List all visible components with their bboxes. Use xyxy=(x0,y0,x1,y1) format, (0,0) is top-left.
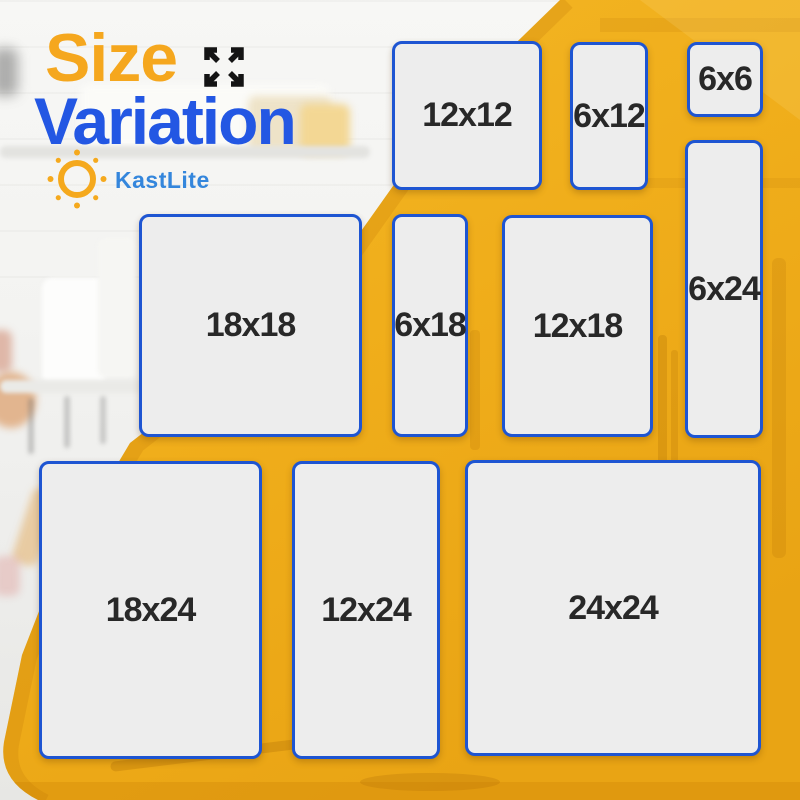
size-label: 18x18 xyxy=(206,306,296,345)
title-size: Size xyxy=(45,24,177,92)
size-label: 6x24 xyxy=(688,270,760,309)
title-variation: Variation xyxy=(34,88,295,154)
size-label: 18x24 xyxy=(106,591,196,630)
brand-name: KastLite xyxy=(115,167,210,194)
sun-icon xyxy=(46,148,108,210)
size-box-18x24: 18x24 xyxy=(39,461,262,759)
size-label: 6x12 xyxy=(573,97,645,136)
size-label: 6x18 xyxy=(394,306,466,345)
size-box-6x12: 6x12 xyxy=(570,42,648,190)
size-box-18x18: 18x18 xyxy=(139,214,362,437)
size-box-6x18: 6x18 xyxy=(392,214,468,437)
size-label: 24x24 xyxy=(568,589,658,628)
size-box-12x12: 12x12 xyxy=(392,41,542,190)
size-box-6x24: 6x24 xyxy=(685,140,763,438)
size-label: 6x6 xyxy=(698,60,752,99)
size-box-6x6: 6x6 xyxy=(687,42,763,117)
size-label: 12x24 xyxy=(321,591,411,630)
size-label: 12x12 xyxy=(422,96,512,135)
size-label: 12x18 xyxy=(533,307,623,346)
size-box-12x24: 12x24 xyxy=(292,461,440,759)
size-variation-poster: Size Variation KastLite 12x12 6x12 6x6 6… xyxy=(0,0,800,800)
size-box-12x18: 12x18 xyxy=(502,215,653,437)
size-box-24x24: 24x24 xyxy=(465,460,761,756)
